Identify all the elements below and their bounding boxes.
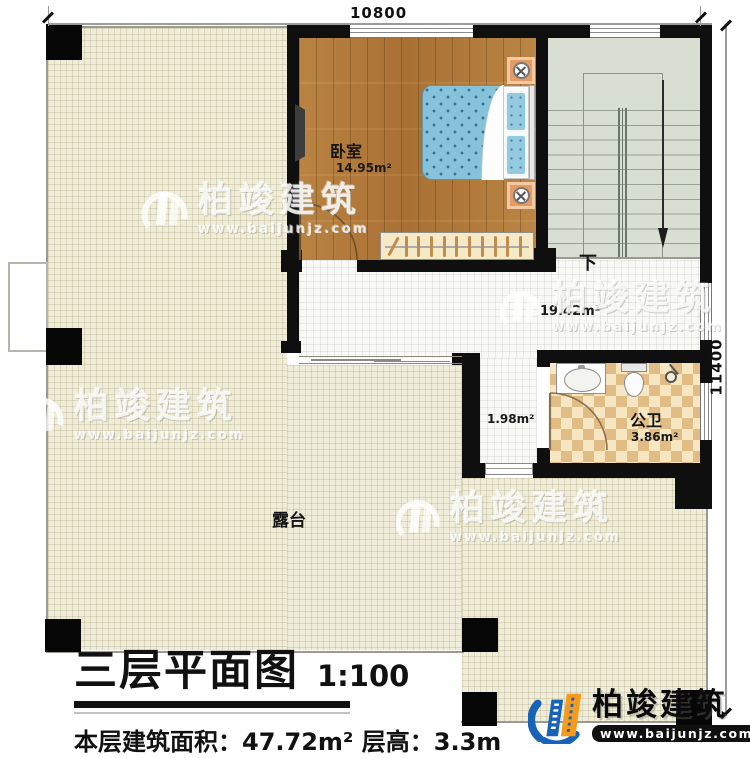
wardrobe <box>380 232 534 260</box>
stair-bottom-edge <box>548 257 700 259</box>
brand-logo: 柏竣建筑 www.baijunjz.com <box>528 688 750 744</box>
wall-vestibule-bottom-block <box>462 463 485 478</box>
bedroom-area: 14.95m² <box>336 162 392 174</box>
terrace-floor-left <box>48 28 287 650</box>
dimension-top-line <box>48 23 712 25</box>
hanger-icon <box>417 236 420 257</box>
brand-url: www.baijunjz.com <box>592 725 750 742</box>
column-mid-left <box>46 328 82 365</box>
floor-plan-page: 卧室 14.95m² 下 19.42m² 1.98m² 公卫 3.86m² 露台… <box>0 0 750 758</box>
title-underline-thick <box>74 701 350 708</box>
hanger-icon <box>519 236 522 257</box>
stair-railing <box>618 108 627 258</box>
dimension-top-value: 10800 <box>350 4 407 22</box>
floor-info: 本层建筑面积：47.72m² 层高：3.3m <box>74 722 501 757</box>
vestibule-area: 1.98m² <box>487 413 534 425</box>
bedroom-window <box>350 24 473 38</box>
hanger-icon <box>506 236 509 257</box>
tv-icon <box>295 104 305 162</box>
vestibule-terrace-door-sill <box>485 463 533 475</box>
terrace-floor-center <box>287 365 462 650</box>
title-underline-thin <box>74 712 350 714</box>
brand-name: 柏竣建筑 <box>592 690 750 721</box>
corridor-floor <box>299 260 700 358</box>
wall-bedroom-stairs <box>536 24 548 262</box>
hanger-icon <box>430 236 433 257</box>
wall-bedroom-bottom-right <box>357 260 536 272</box>
bed-headboard <box>529 85 535 180</box>
stair-down-arrow <box>658 228 668 248</box>
wall-top-2 <box>473 24 590 38</box>
page-title: 三层平面图 <box>74 650 299 693</box>
wall-bathroom-top <box>537 350 712 363</box>
hanger-icon <box>455 236 458 257</box>
hanger-icon <box>494 236 497 257</box>
bay-planter-box <box>8 262 48 352</box>
nightstand-top <box>507 57 535 84</box>
wall-building-left <box>287 24 299 353</box>
corridor-area: 19.42m² <box>540 305 600 318</box>
column-terrace-step <box>462 618 498 652</box>
bed-pillow-1 <box>505 91 527 132</box>
toilet-tank <box>621 363 647 372</box>
dimension-tick <box>695 11 707 23</box>
brand-logo-icon <box>528 688 586 744</box>
wall-bedroom-bottom-left <box>287 260 300 272</box>
wall-vestibule-bathroom-top <box>537 350 550 367</box>
bathroom-area: 3.86m² <box>631 431 678 443</box>
sliding-door-leaf2 <box>374 361 450 363</box>
corridor-window <box>700 283 712 340</box>
plan-scale: 1:100 <box>317 659 409 693</box>
terrace-edge-top <box>46 26 289 28</box>
wall-building-right-upper <box>700 24 712 283</box>
lamp-icon <box>513 62 530 79</box>
bathroom-label: 公卫 <box>630 412 662 430</box>
nightstand-bottom <box>507 182 535 209</box>
corridor-sliding-door <box>299 356 462 364</box>
hanger-icon <box>443 236 446 257</box>
hanger-icon <box>405 236 408 257</box>
terrace-label: 露台 <box>272 512 306 531</box>
dimension-right-value: 11400 <box>708 338 726 395</box>
column-top-left <box>46 24 82 60</box>
stairwell-window <box>590 24 660 38</box>
wall-bathroom-bottom <box>533 463 712 478</box>
wall-left-end-block <box>281 341 301 353</box>
sink-faucet <box>578 365 585 369</box>
hanger-icon <box>481 236 484 257</box>
bedroom-label: 卧室 <box>330 143 362 161</box>
lamp-icon <box>513 187 530 204</box>
wall-vestibule-left <box>462 353 480 475</box>
stair-direction-line <box>662 80 664 228</box>
sink-basin <box>564 368 601 392</box>
hanger-icon <box>468 236 471 257</box>
terrace-floor-right <box>462 478 707 650</box>
bed-pillow-2 <box>505 134 527 176</box>
vestibule-floor <box>480 358 537 463</box>
stairs-down-label: 下 <box>579 254 597 274</box>
title-block: 三层平面图 1:100 本层建筑面积：47.72m² 层高：3.3m <box>74 650 501 757</box>
sink <box>556 363 606 394</box>
